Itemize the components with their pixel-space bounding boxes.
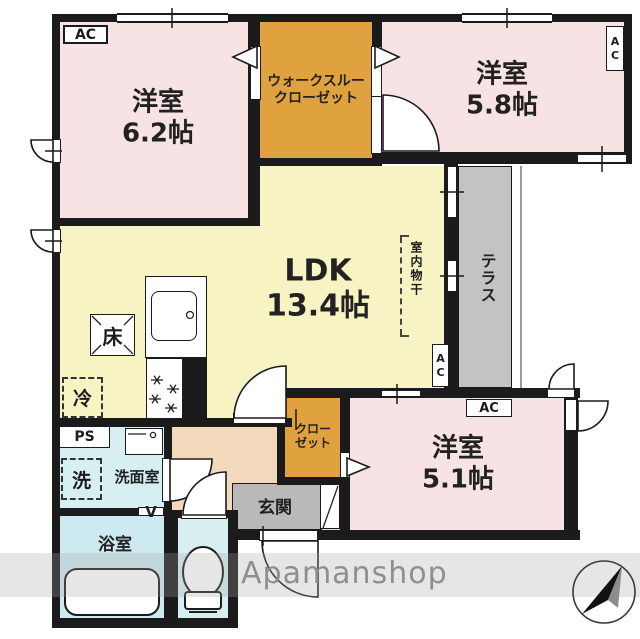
wall-wtc-bottom	[249, 158, 382, 166]
wall-closet-bottom	[277, 477, 350, 485]
watermark-text: Apamanshop	[241, 556, 448, 591]
wtc-line2: クローゼット	[267, 90, 365, 107]
ac-box-ldk: AC	[432, 344, 449, 387]
pipe-space-label: PS	[74, 429, 94, 445]
pipe-space-box: PS	[59, 426, 110, 448]
window-room58-bottom	[578, 153, 626, 164]
wall-room51-top	[277, 388, 580, 398]
window-ldk-terrace	[446, 261, 458, 291]
wall-outer-bottom-left	[52, 618, 238, 628]
terrace-label: テラス	[477, 253, 496, 304]
wtc-line1: ウォークスルー	[267, 73, 365, 90]
refrigerator-label: 冷	[73, 384, 92, 411]
ac-label: AC	[434, 352, 447, 380]
door-arc-room51-right	[578, 401, 608, 431]
ldk-label: LDK 13.4帖	[266, 254, 370, 325]
closet-line1: クロー	[295, 422, 331, 436]
ac-box-room51: AC	[466, 399, 512, 417]
shoe-cabinet	[320, 483, 340, 529]
washroom-label: 洗面室	[114, 469, 159, 487]
window-room62-top	[117, 13, 228, 23]
terrace-edge-line	[520, 166, 522, 388]
window-room58-top	[462, 13, 552, 23]
ac-label: AC	[609, 35, 622, 63]
indoor-drying-label: 室内物干	[408, 241, 425, 297]
floor-plan: 床 冷 PS 洗	[0, 0, 640, 639]
window-terrace-door	[446, 167, 458, 217]
door-leaf-ldk-hall	[233, 413, 286, 424]
wall-closet-left	[277, 388, 285, 485]
room-51-name: 洋室	[422, 433, 494, 464]
door-leaf-washroom	[162, 458, 172, 502]
ac-label: AC	[479, 401, 499, 416]
ldk-size: 13.4帖	[266, 289, 370, 324]
room-62-name: 洋室	[122, 87, 194, 118]
vent-gap-left-2	[52, 229, 61, 253]
room-58-name: 洋室	[466, 59, 538, 90]
ac-box-room62: AC	[63, 25, 108, 44]
floor-storage-box: 床	[90, 314, 135, 356]
opening-closet-room51	[340, 452, 350, 478]
room-51-label: 洋室 5.1帖	[422, 433, 494, 494]
door-arc-room51-terrace	[549, 364, 574, 389]
door-leaf-room51-right	[565, 399, 577, 431]
kitchen-sink	[151, 291, 197, 341]
door-leaf-entrance	[259, 530, 318, 541]
ac-box-room58: AC	[606, 26, 624, 71]
washing-machine-box: 洗	[61, 458, 102, 500]
door-leaf-room58	[371, 96, 382, 154]
door-leaf-room51-terrace	[547, 388, 575, 398]
vent-arc-left-2	[31, 230, 53, 252]
indoor-drying-bracket: 室内物干	[400, 237, 427, 335]
ldk-name: LDK	[266, 254, 370, 289]
washbasin	[125, 428, 163, 455]
door-leaf-wtc-right	[371, 46, 382, 100]
walk-through-closet-label: ウォークスルー クローゼット	[267, 73, 365, 106]
wall-room62-bottom	[52, 218, 260, 226]
bath-vent-label: V	[145, 504, 157, 522]
entrance-label: 玄関	[258, 498, 292, 518]
room-62-size: 6.2帖	[122, 118, 194, 149]
refrigerator-box: 冷	[62, 377, 103, 418]
closet-label: クロー ゼット	[295, 422, 331, 450]
floor-storage-label: 床	[103, 321, 123, 350]
closet-line2: ゼット	[295, 436, 331, 450]
washing-machine-label: 洗	[72, 466, 91, 493]
room-58-size: 5.8帖	[466, 90, 538, 121]
room-51-size: 5.1帖	[422, 464, 494, 495]
vent-gap-left-1	[52, 139, 61, 163]
ac-label: AC	[75, 27, 96, 43]
room-58-label: 洋室 5.8帖	[466, 59, 538, 120]
vent-arc-left-1	[31, 140, 53, 162]
wall-outer-left	[52, 14, 60, 628]
door-leaf-wtc-left	[250, 46, 261, 100]
wall-room58-right	[624, 14, 632, 160]
window-room51-top	[382, 389, 420, 398]
room-62-label: 洋室 6.2帖	[122, 87, 194, 148]
door-leaf-toilet	[181, 510, 227, 519]
kitchen-wall-block	[183, 358, 207, 419]
kitchen-stove	[146, 358, 183, 419]
